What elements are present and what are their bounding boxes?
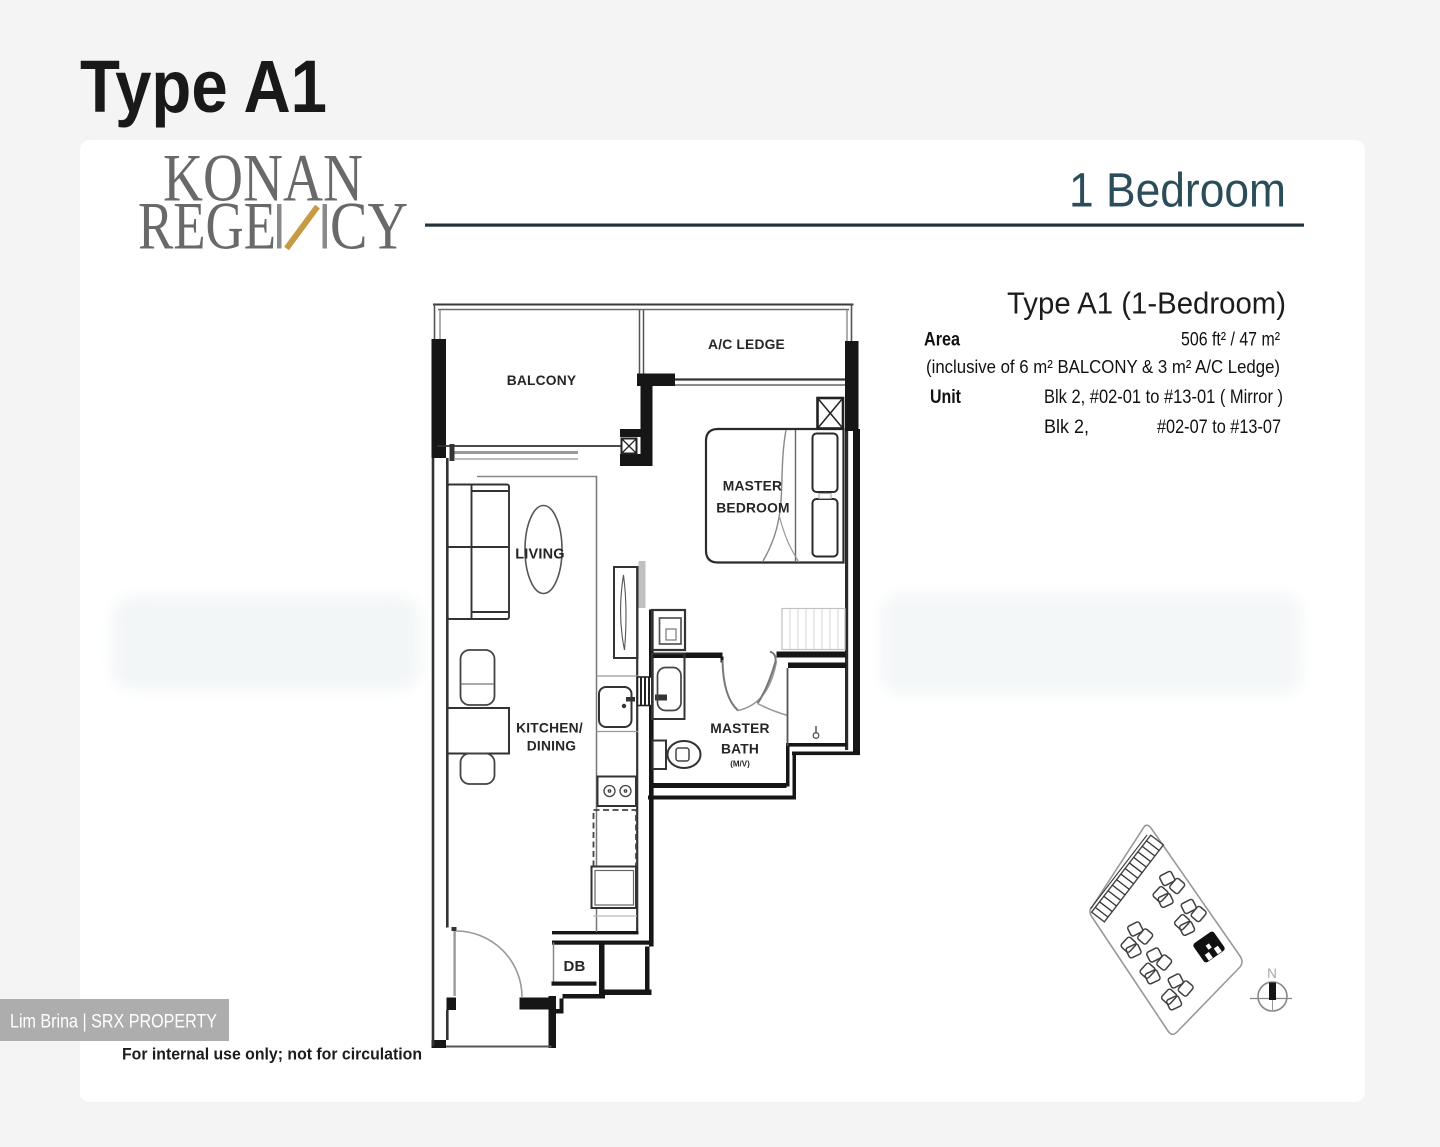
- svg-text:For internal use only; not for: For internal use only; not for circulati…: [122, 1045, 422, 1064]
- svg-text:MASTER: MASTER: [723, 479, 782, 494]
- svg-text:1 Bedroom: 1 Bedroom: [1069, 165, 1286, 218]
- svg-text:DINING: DINING: [527, 739, 577, 754]
- svg-text:BEDROOM: BEDROOM: [716, 501, 789, 516]
- svg-text:Type A1 (1-Bedroom): Type A1 (1-Bedroom): [1007, 286, 1286, 321]
- svg-text:BALCONY: BALCONY: [507, 373, 577, 388]
- svg-text:DB: DB: [563, 958, 585, 975]
- svg-text:#02-07 to #13-07: #02-07 to #13-07: [1157, 417, 1281, 438]
- svg-text:Type A1: Type A1: [80, 45, 327, 128]
- svg-text:Blk 2,: Blk 2,: [1044, 417, 1089, 438]
- svg-text:A/C LEDGE: A/C LEDGE: [708, 337, 785, 352]
- svg-text:Blk 2, #02-01 to #13-01 ( Mirr: Blk 2, #02-01 to #13-01 ( Mirror ): [1044, 387, 1283, 408]
- svg-text:CY: CY: [330, 188, 408, 264]
- svg-text:KITCHEN/: KITCHEN/: [516, 721, 583, 736]
- svg-text:N: N: [1267, 966, 1277, 981]
- svg-text:(inclusive of 6 m² BALCONY & 3: (inclusive of 6 m² BALCONY & 3 m² A/C Le…: [926, 356, 1280, 377]
- svg-text:LIVING: LIVING: [515, 547, 565, 563]
- svg-text:Lim Brina | SRX PROPERTY: Lim Brina | SRX PROPERTY: [10, 1012, 217, 1033]
- svg-text:Area: Area: [924, 330, 960, 351]
- svg-text:MASTER: MASTER: [710, 721, 769, 736]
- svg-text:REGE: REGE: [138, 188, 276, 264]
- svg-text:Unit: Unit: [930, 387, 962, 408]
- svg-text:506 ft² / 47 m²: 506 ft² / 47 m²: [1181, 330, 1280, 351]
- svg-text:(M/V): (M/V): [730, 760, 750, 769]
- svg-text:BATH: BATH: [721, 742, 759, 757]
